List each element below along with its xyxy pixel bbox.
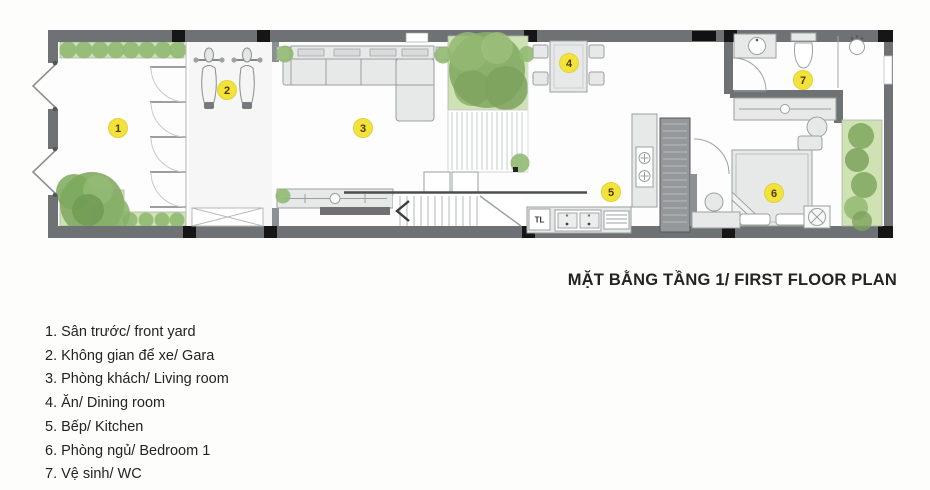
- legend: 1. Sân trước/ front yard 2. Không gian đ…: [45, 321, 229, 487]
- room-badge-5: 5: [602, 183, 621, 202]
- svg-text:5: 5: [608, 187, 614, 199]
- legend-item-3: 3. Phòng khách/ Living room: [45, 368, 229, 392]
- legend-item-2: 2. Không gian để xe/ Gara: [45, 345, 229, 369]
- svg-text:4: 4: [566, 58, 573, 70]
- svg-text:6: 6: [771, 188, 777, 200]
- room-badge-3: 3: [354, 119, 373, 138]
- courtyard-planter: [448, 32, 528, 110]
- legend-item-6: 6. Phòng ngủ/ Bedroom 1: [45, 440, 229, 464]
- floor-drain-symbol: [804, 206, 830, 228]
- legend-item-7: 7. Vệ sinh/ WC: [45, 463, 229, 487]
- svg-text:1: 1: [115, 123, 121, 135]
- shelf-tower: [660, 118, 690, 232]
- wardrobe: [734, 98, 836, 120]
- tv-unit: [320, 207, 390, 215]
- washbasin: [734, 34, 776, 58]
- svg-text:7: 7: [800, 75, 806, 87]
- garage-floor: [189, 42, 272, 226]
- svg-text:2: 2: [224, 85, 230, 97]
- room-badge-4: 4: [560, 54, 579, 73]
- room-badge-6: 6: [765, 184, 784, 203]
- legend-item-4: 4. Ăn/ Dining room: [45, 392, 229, 416]
- fridge-label: TL: [535, 216, 545, 225]
- legend-item-5: 5. Bếp/ Kitchen: [45, 416, 229, 440]
- plan-title: MẶT BẰNG TẦNG 1/ FIRST FLOOR PLAN: [568, 271, 897, 290]
- garage-door-opening: [192, 208, 263, 226]
- room-badge-7: 7: [794, 71, 813, 90]
- floor-plan-drawing: TL: [0, 0, 930, 250]
- kitchen-sink: [555, 210, 601, 231]
- room-badge-2: 2: [218, 81, 237, 100]
- legend-item-1: 1. Sân trước/ front yard: [45, 321, 229, 345]
- room-badge-1: 1: [109, 119, 128, 138]
- dish-rack: [604, 211, 629, 229]
- garage-wall-stub-bottom: [272, 208, 279, 226]
- side-planter: [842, 120, 882, 231]
- svg-text:3: 3: [360, 123, 366, 135]
